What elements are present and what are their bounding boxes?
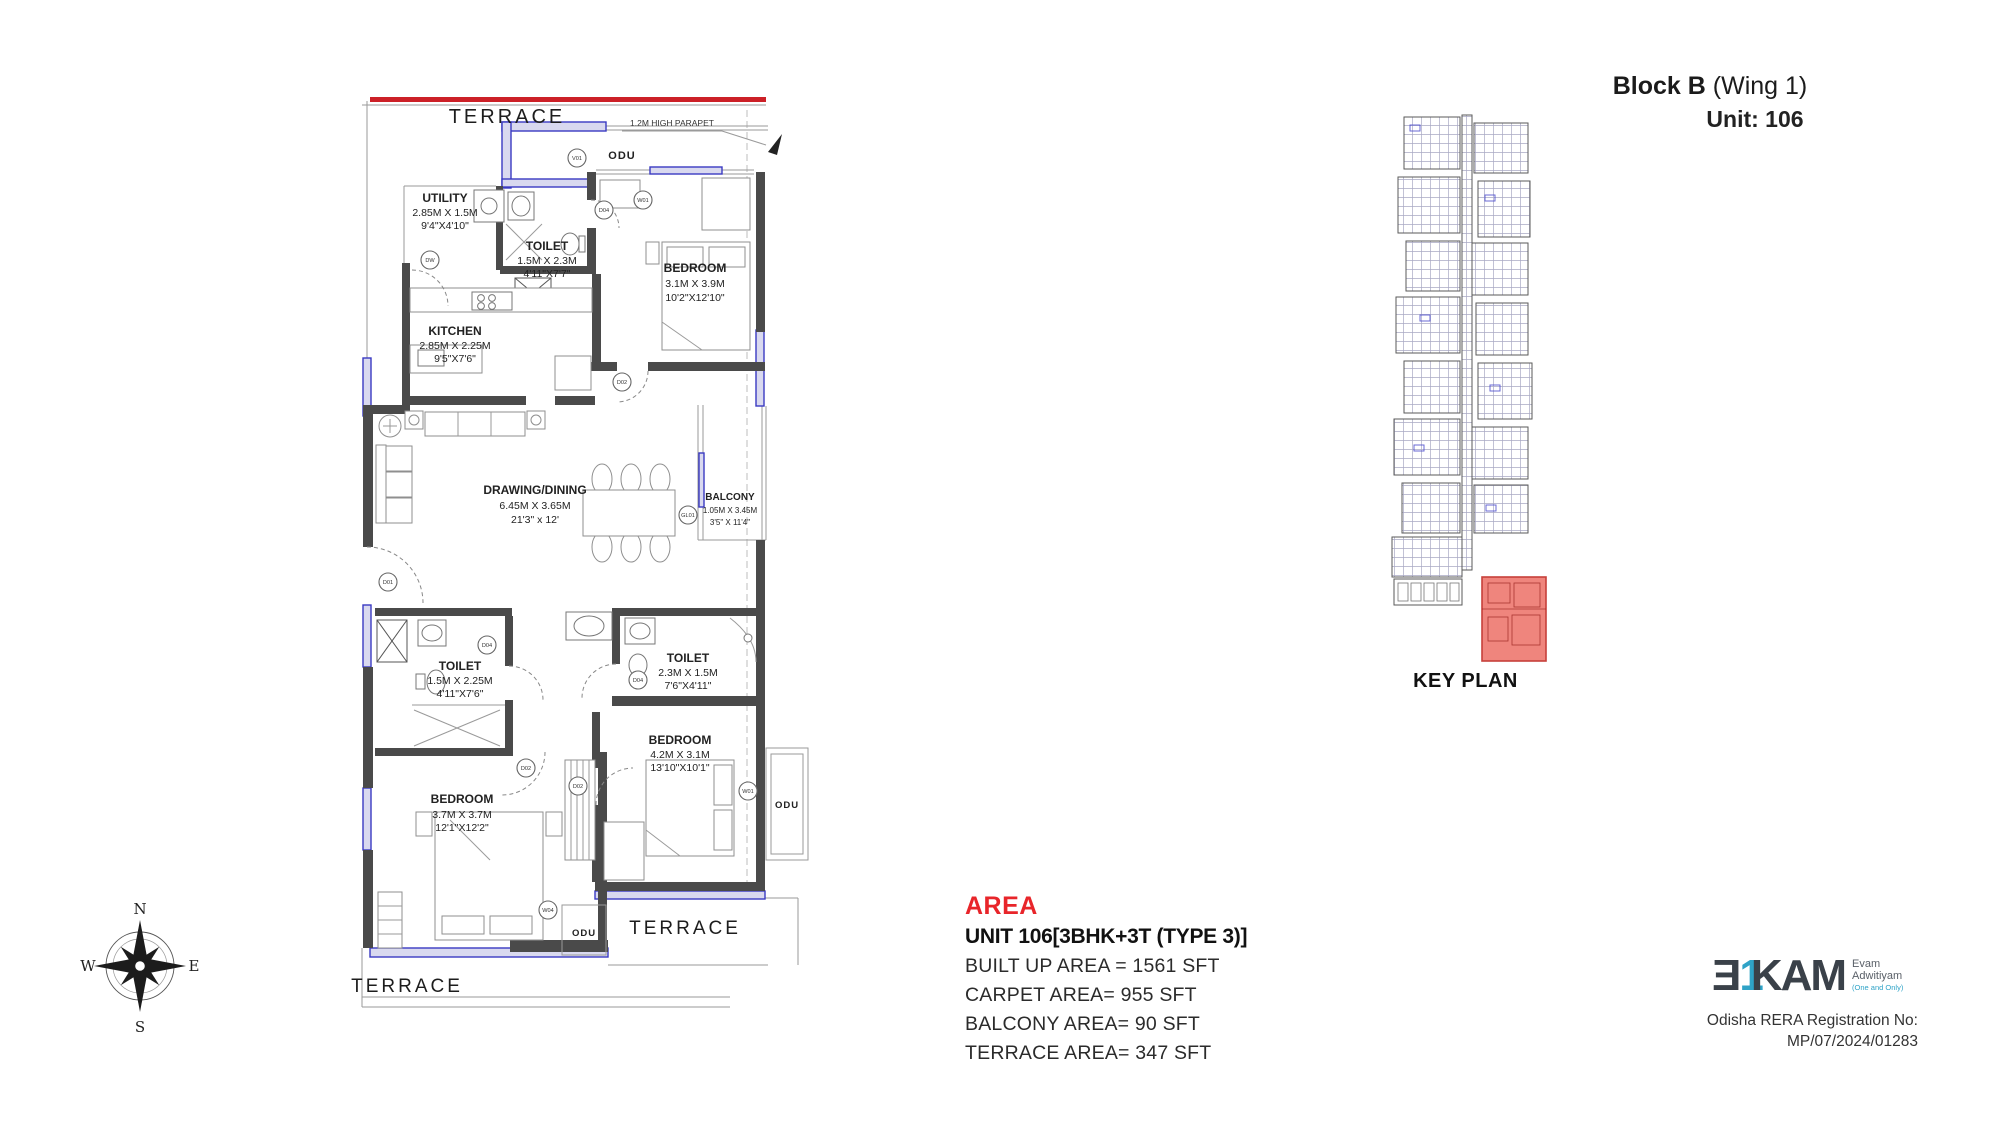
logo-tagline-adwitiyam: Adwitiyam bbox=[1852, 970, 1903, 982]
block-title: Block B (Wing 1) bbox=[1560, 72, 1860, 101]
svg-text:V01: V01 bbox=[572, 156, 582, 162]
compass-s: S bbox=[135, 1018, 145, 1036]
area-terrace: TERRACE AREA= 347 SFT bbox=[965, 1042, 1295, 1065]
parapet-leader bbox=[622, 131, 782, 155]
title-block: Block B (Wing 1) Unit: 106 bbox=[1560, 72, 1860, 133]
svg-text:D02: D02 bbox=[617, 380, 627, 386]
kitchen-dim-m: 2.85M X 2.25M bbox=[419, 340, 490, 352]
svg-text:D04: D04 bbox=[633, 678, 643, 684]
balcony-label: BALCONY bbox=[705, 492, 755, 503]
rera-line1: Odisha RERA Registration No: bbox=[1668, 1010, 1918, 1031]
terrace-bottom-left-label: TERRACE bbox=[351, 976, 463, 997]
toilet1-label: TOILET bbox=[526, 239, 569, 253]
area-heading: AREA bbox=[965, 892, 1295, 921]
wing-name: (Wing 1) bbox=[1706, 72, 1807, 100]
red-parapet-line bbox=[370, 97, 766, 102]
unit-title: Unit: 106 bbox=[1560, 106, 1860, 133]
parapet-note: 1.2M HIGH PARAPET bbox=[630, 118, 714, 128]
bedroom2-dim-m: 4.2M X 3.1M bbox=[650, 749, 710, 761]
logo-e: Ǝ bbox=[1712, 954, 1739, 998]
area-statement: AREA UNIT 106[3BHK+3T (TYPE 3)] BUILT UP… bbox=[965, 892, 1295, 1065]
key-plan bbox=[1390, 85, 1570, 685]
bedroom3-dim-m: 3.7M X 3.7M bbox=[432, 809, 492, 821]
svg-text:GL01: GL01 bbox=[681, 513, 695, 519]
tag-d01-entrance: D01 bbox=[379, 573, 397, 591]
page: TERRACE 1.2M HIGH PARAPET ODU UTILITY 2.… bbox=[0, 0, 1999, 1125]
drawing-dim-ft: 21'3" x 12' bbox=[511, 514, 559, 526]
tag-d04-toilet1: D04 bbox=[595, 201, 613, 219]
logo-tagline: Evam Adwitiyam (One and Only) bbox=[1852, 958, 1903, 994]
balcony-dim-m: 1.05M X 3.45M bbox=[703, 506, 758, 515]
toilet3-dim-ft: 7'6"X4'11" bbox=[665, 680, 712, 692]
toilet3-dim-m: 2.3M X 1.5M bbox=[658, 667, 718, 679]
svg-text:D02: D02 bbox=[573, 784, 583, 790]
area-unit-line: UNIT 106[3BHK+3T (TYPE 3)] bbox=[965, 925, 1295, 949]
block-name: Block B bbox=[1613, 72, 1706, 100]
tag-d02-bedroom2: D02 bbox=[569, 777, 587, 795]
svg-text:D01: D01 bbox=[383, 580, 393, 586]
floor-plan: TERRACE 1.2M HIGH PARAPET ODU UTILITY 2.… bbox=[350, 60, 810, 1060]
tag-dw: DW bbox=[421, 251, 439, 269]
tag-d04-toilet2: D04 bbox=[478, 636, 496, 654]
tag-d02-bedroom3: D02 bbox=[517, 759, 535, 777]
svg-text:D02: D02 bbox=[521, 766, 531, 772]
toilet2-dim-ft: 4'11"X7'6" bbox=[437, 688, 484, 700]
tag-w04: W04 bbox=[539, 901, 557, 919]
odu-top-label: ODU bbox=[608, 150, 635, 162]
area-carpet: CARPET AREA= 955 SFT bbox=[965, 984, 1295, 1007]
svg-text:W01: W01 bbox=[637, 198, 649, 204]
drawing-dining-label: DRAWING/DINING bbox=[483, 483, 586, 497]
toilet3-label: TOILET bbox=[667, 651, 710, 665]
svg-text:DW: DW bbox=[425, 258, 435, 264]
bedroom2-dim-ft: 13'10"X10'1" bbox=[650, 762, 710, 774]
bedroom1-label: BEDROOM bbox=[664, 261, 727, 275]
odu-bottom-label: ODU bbox=[572, 928, 596, 939]
kitchen-label: KITCHEN bbox=[428, 324, 481, 338]
svg-text:D04: D04 bbox=[599, 208, 609, 214]
bedroom2-label: BEDROOM bbox=[649, 733, 712, 747]
logo-kam: KAM bbox=[1751, 954, 1845, 998]
bedroom1-dim-m: 3.1M X 3.9M bbox=[665, 278, 725, 290]
svg-text:W01: W01 bbox=[742, 789, 754, 795]
tag-gl01: GL01 bbox=[679, 506, 697, 524]
svg-text:D04: D04 bbox=[482, 643, 492, 649]
balcony-dim-ft: 3'5" X 11'4" bbox=[710, 518, 750, 527]
tag-v01: V01 bbox=[568, 149, 586, 167]
bedroom3-dim-ft: 12'1"X12'2" bbox=[435, 822, 489, 834]
compass-icon: N S W E bbox=[78, 898, 203, 1038]
tag-d04-toilet3: D04 bbox=[629, 671, 647, 689]
area-balcony: BALCONY AREA= 90 SFT bbox=[965, 1013, 1295, 1036]
ekam-logo: Ǝ 1 KAM Evam Adwitiyam (One and Only) bbox=[1712, 954, 1903, 998]
key-plan-stilts bbox=[1398, 583, 1459, 601]
bedroom3-label: BEDROOM bbox=[431, 792, 494, 806]
terrace-top-label: TERRACE bbox=[449, 106, 566, 128]
toilet1-dim-ft: 4'11"X7'7" bbox=[524, 268, 571, 280]
rera-registration: Odisha RERA Registration No: MP/07/2024/… bbox=[1668, 1010, 1918, 1052]
utility-dim-m: 2.85M X 1.5M bbox=[412, 207, 477, 219]
odu-right-label: ODU bbox=[775, 800, 799, 811]
key-plan-label: KEY PLAN bbox=[1398, 670, 1533, 693]
logo-tagline-evam: Evam bbox=[1852, 958, 1903, 970]
tag-w01-bedroom2: W01 bbox=[739, 782, 757, 800]
key-plan-blocks bbox=[1392, 115, 1532, 605]
svg-text:W04: W04 bbox=[542, 908, 554, 914]
key-plan-highlight-unit bbox=[1482, 577, 1546, 661]
toilet1-dim-m: 1.5M X 2.3M bbox=[517, 255, 577, 267]
rera-line2: MP/07/2024/01283 bbox=[1668, 1031, 1918, 1052]
tag-w01-top: W01 bbox=[634, 191, 652, 209]
area-builtup: BUILT UP AREA = 1561 SFT bbox=[965, 955, 1295, 978]
compass-n: N bbox=[133, 900, 146, 918]
compass-w: W bbox=[80, 957, 96, 975]
terrace-bottom-right-label: TERRACE bbox=[629, 918, 741, 939]
tag-d02-bedroom1: D02 bbox=[613, 373, 631, 391]
drawing-dim-m: 6.45M X 3.65M bbox=[499, 500, 570, 512]
compass-e: E bbox=[189, 957, 200, 975]
north-arrow-icon bbox=[768, 134, 782, 155]
toilet2-dim-m: 1.5M X 2.25M bbox=[427, 675, 492, 687]
utility-label: UTILITY bbox=[422, 191, 467, 205]
utility-dim-ft: 9'4"X4'10" bbox=[421, 220, 469, 232]
logo-tagline-oneandonly: (One and Only) bbox=[1852, 982, 1903, 994]
toilet2-label: TOILET bbox=[439, 659, 482, 673]
bedroom1-dim-ft: 10'2"X12'10" bbox=[665, 292, 725, 304]
kitchen-dim-ft: 9'5"X7'6" bbox=[434, 353, 476, 365]
